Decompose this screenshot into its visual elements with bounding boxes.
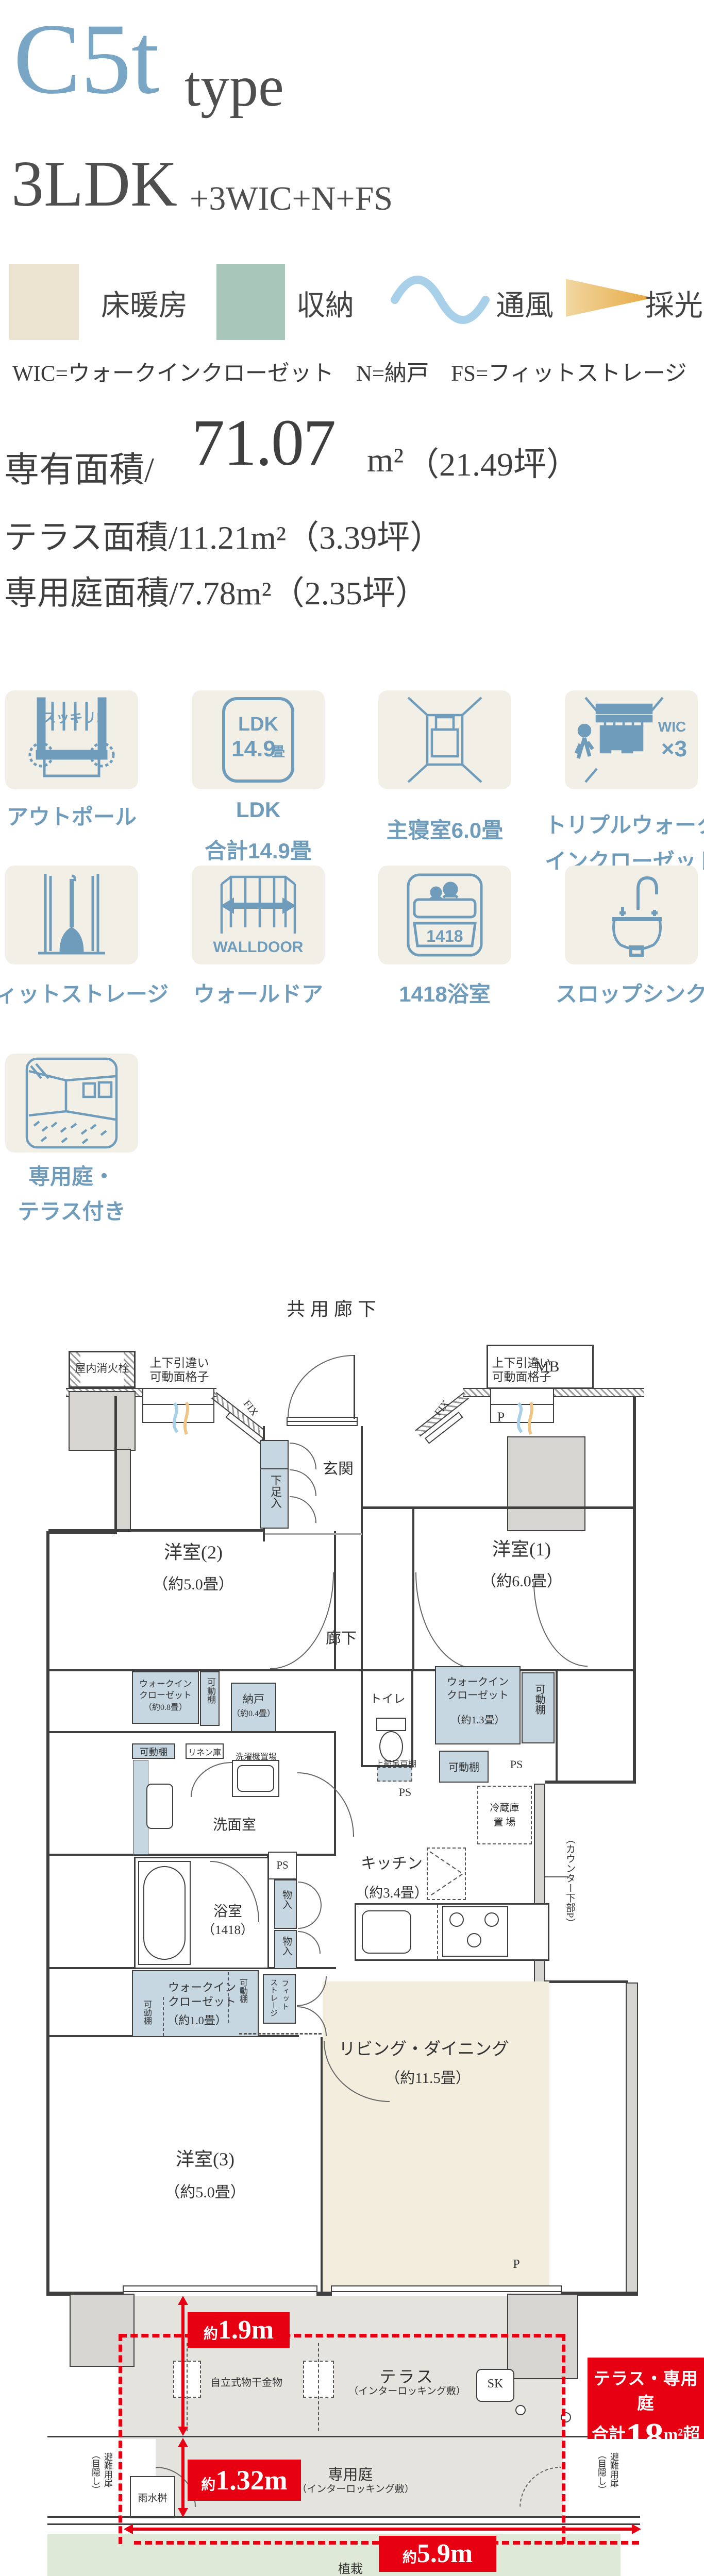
fence-line [47, 2516, 640, 2518]
wic13-l2: クローゼット [447, 1687, 509, 1702]
feature-card-terrace [5, 1054, 138, 1153]
legend-floor-heating-label: 床暖房 [101, 282, 188, 324]
feature-label-walldoor: ウォールドア [193, 977, 323, 1008]
garden-area-line: 専用庭面積/7.78m²（2.35坪） [4, 567, 428, 614]
wic10-shelf-r-label: 可動棚 [236, 1978, 248, 2003]
feature-card-walldoor: WALLDOOR [192, 866, 325, 964]
svg-text:×3: ×3 [661, 736, 687, 761]
legend-storage-swatch [216, 264, 285, 340]
svg-text:1418: 1418 [426, 927, 463, 945]
room3-label: 洋室(3) [176, 2144, 234, 2171]
ps-label-3: PS [276, 1859, 288, 1872]
svg-text:WIC: WIC [658, 719, 686, 735]
counter-divider [437, 1905, 438, 1959]
wic13-l1: ウォークイン [447, 1673, 509, 1688]
door-arc [298, 1931, 321, 1954]
mono2-label: 物入 [279, 1936, 293, 1956]
terrace-garden-badge: テラス・専用庭 合計18m²超 [588, 2358, 704, 2439]
arrowhead [632, 2524, 641, 2534]
linen-label: リネン庫 [188, 1745, 221, 1758]
room2-door-arc [270, 1572, 334, 1669]
wall [48, 1731, 336, 1733]
main-area-label: 専有面積/ [4, 441, 154, 492]
ld-right-wall [626, 1982, 638, 2295]
dim-arrow-width [130, 2528, 635, 2531]
wall [412, 1509, 414, 1671]
floorplan-page: C5t type 3LDK +3WIC+N+FS 床暖房 収納 通風 採光 WI… [0, 0, 704, 2576]
arrowhead [178, 2427, 188, 2436]
washroom-label: 洗面室 [213, 1814, 256, 1834]
p-label-bottom: P [513, 2258, 519, 2272]
terrace-garden-line [47, 2436, 640, 2437]
entrance-door-leaf [354, 1355, 355, 1419]
feature-label-terrace-2: テラス付き [18, 1194, 125, 1226]
terrace-interlock: （インターロッキング敷） [348, 2383, 465, 2397]
pantry-mark [427, 1848, 466, 1900]
door-arc [298, 1905, 322, 1929]
master-bedroom-icon [378, 690, 511, 789]
tub-inner [143, 1866, 186, 1960]
wic13-door-arc [533, 1582, 588, 1667]
legend-floor-heating-swatch [9, 264, 79, 340]
hydrant-label: 屋内消火栓 [75, 1360, 129, 1376]
wic10-shelf-l-label: 可動棚 [140, 2000, 153, 2025]
wall [46, 1531, 49, 2296]
pillar-top-right [507, 1436, 585, 1531]
ld-door-arc [297, 1772, 354, 1837]
shoe-cabinet-divider [261, 1468, 288, 1469]
svg-text:14.9: 14.9 [231, 736, 276, 761]
pillar-top-left [69, 1391, 136, 1451]
door-arc [290, 1469, 316, 1496]
wic10-l2: クローゼット [168, 1993, 236, 2009]
stove-burner [467, 1933, 481, 1947]
feature-label-ldk-2: 合計14.9畳 [205, 834, 312, 865]
outpole-icon: スッキリ! [5, 690, 138, 789]
arrowhead [124, 2524, 133, 2534]
legend-daylight-label: 採光 [645, 282, 703, 324]
stove-burner [484, 1912, 499, 1927]
feature-card-bath1418: 1418 [378, 866, 511, 964]
wall [114, 1396, 117, 1534]
legend-storage-label: 収納 [296, 282, 354, 324]
daylight-triangle-icon [566, 274, 653, 321]
feature-card-bedroom [378, 690, 511, 789]
feature-label-bedroom: 主寝室6.0畳 [387, 813, 503, 844]
stove-burner [449, 1912, 464, 1927]
toilet-label: トイレ [370, 1689, 406, 1706]
layout: 3LDK [11, 145, 177, 223]
shoe-cabinet-label: 下足入 [267, 1475, 283, 1509]
fence-line [47, 2523, 640, 2525]
arrowhead [178, 2438, 188, 2447]
private-garden-terrace-icon [5, 1054, 138, 1153]
sk-label: SK [488, 2377, 504, 2391]
fit-storage-l2: ストレージ [268, 1978, 279, 2017]
svg-text:畳: 畳 [272, 744, 285, 759]
wall [363, 1506, 635, 1509]
lattice-note-right-2: 可動面格子 [492, 1367, 551, 1384]
feature-card-fitstorage [5, 866, 138, 964]
living-label: リビング・ダイニング [339, 2035, 509, 2060]
plan-compass-icon [650, 2574, 700, 2576]
dim-5-9m: 約5.9m [379, 2536, 496, 2572]
slop-sink-icon [565, 866, 698, 964]
door-arc [298, 1882, 322, 1905]
pillar-bottom-left [70, 2294, 135, 2367]
entrance-sill [287, 1417, 358, 1426]
room3-size: （約5.0畳） [164, 2179, 246, 2202]
feature-label-wic-1: トリプルウォーク [545, 808, 704, 839]
rainwater-label: 雨水桝 [138, 2490, 167, 2504]
drain-circle [515, 2405, 526, 2415]
kitchen-sink [362, 1910, 411, 1954]
shelf4-label: 可動棚 [448, 1759, 479, 1774]
pole-line [318, 2343, 319, 2431]
wall [411, 1671, 413, 1767]
feature-card-wic: WIC ×3 [565, 690, 698, 789]
terrace-area-line: テラス面積/11.21m²（3.39坪） [4, 511, 443, 558]
layout-suffix: +3WIC+N+FS [190, 179, 393, 218]
planting-strip [47, 2534, 621, 2576]
wall [545, 1781, 636, 1784]
dim-arrow-garden [181, 2443, 185, 2513]
fridge-l1: 冷蔵庫 [490, 1800, 519, 1814]
unit-type-word: type [185, 58, 284, 115]
wall [545, 1980, 628, 1983]
wic08-l2: クローゼット [139, 1688, 192, 1701]
dim-1-32m: 約1.32m [188, 2460, 301, 2501]
nando-label: 納戸 [243, 1691, 264, 1706]
counter-leader [545, 1876, 568, 1877]
feature-card-slopsink [565, 866, 698, 964]
ps-label-2: PS [399, 1786, 411, 1799]
door-arc [290, 1443, 316, 1469]
pole-line [187, 2343, 188, 2431]
feature-label-fitstorage: フィットストレージ [0, 977, 169, 1008]
ps-label-1: PS [510, 1758, 523, 1771]
wic13-size: （約1.3畳） [451, 1711, 505, 1726]
svg-text:スッキリ!: スッキリ! [43, 710, 101, 725]
legend-note: WIC=ウォークインクローゼット N=納戸 FS=フィットストレージ [12, 355, 687, 387]
ldk-icon: LDK 14.9 畳 [192, 690, 325, 789]
washbasin [146, 1784, 173, 1829]
toilet-tank [376, 1718, 406, 1731]
entrance-door-arc [288, 1355, 354, 1418]
feature-label-outpole: アウトポール [7, 800, 137, 831]
dim-1-9m: 約1.9m [188, 2312, 290, 2348]
feature-label-ldk-1: LDK [236, 798, 280, 822]
mono1-label: 物入 [279, 1890, 293, 1909]
living-size: （約11.5畳） [385, 2066, 471, 2088]
main-area-unit: m² [367, 441, 404, 480]
room2-size: （約5.0畳） [153, 1571, 234, 1594]
wall [633, 1396, 636, 1784]
lattice-note-left-2: 可動面格子 [150, 1367, 209, 1384]
wash-door-arc [191, 1762, 232, 1797]
counter-note: （カウンター下部P） [563, 1834, 577, 1928]
arrowhead [178, 2296, 188, 2305]
main-area-value: 71.07 [192, 405, 335, 481]
washer-inner [237, 1765, 274, 1792]
svg-text:LDK: LDK [238, 714, 279, 735]
boundary-dash-top [120, 2334, 563, 2337]
cupboard-box [377, 1767, 412, 1782]
wall [556, 1671, 558, 1782]
feature-label-terrace-1: 専用庭・ [28, 1159, 115, 1191]
nando-size: （約0.4畳） [232, 1706, 275, 1719]
wic10-size: （約1.0畳） [167, 2011, 227, 2028]
feature-label-bath1418: 1418浴室 [399, 977, 490, 1008]
living-floor-heating-area [323, 1981, 549, 2292]
escape-door-left-1: 避難用扉 [101, 2452, 114, 2487]
boundary-dash-right [562, 2334, 565, 2544]
door-arc [290, 1496, 316, 1523]
room1-door-arc [415, 1572, 477, 1669]
bath-1418-icon: 1418 [378, 866, 511, 964]
legend-ventilation-label: 通風 [496, 282, 554, 324]
shelf2-label: 可動棚 [532, 1684, 547, 1715]
planting-label: 植栽 [338, 2558, 363, 2576]
vent-light-icon-top-left [164, 1399, 197, 1449]
triple-wic-icon: WIC ×3 [565, 690, 698, 789]
wall [48, 1529, 265, 1532]
escape-door-left-2: （目隠し） [89, 2450, 102, 2494]
fit-storage-icon [5, 866, 138, 964]
hall-label: 廊下 [326, 1625, 357, 1648]
feature-card-outpole: スッキリ! [5, 690, 138, 789]
walldoor-icon: WALLDOOR [192, 866, 325, 964]
wind-wave-icon [388, 268, 493, 327]
shelf3-label: 可動棚 [140, 1745, 167, 1758]
boundary-dash-left [119, 2334, 122, 2544]
shelf-label: 可動棚 [204, 1677, 217, 1704]
kitchen-label: キッチン [361, 1851, 423, 1873]
arrowhead [178, 2508, 188, 2517]
feature-card-ldk: LDK 14.9 畳 [192, 690, 325, 789]
feature-label-slopsink: スロップシンク [556, 977, 704, 1008]
wic08-size: （約0.8畳） [144, 1700, 187, 1713]
garden-interlock: （インターロッキング敷） [297, 2481, 414, 2495]
wall [334, 1531, 336, 1671]
dim-arrow-terrace [181, 2301, 185, 2431]
main-area-tsubo: （21.49坪） [406, 438, 579, 485]
fit-storage-l1: フィット [279, 1979, 290, 2010]
kitchen-size: （約3.4畳） [355, 1882, 428, 1902]
unit-name: C5t [13, 1, 159, 117]
p-label-top: P [497, 1410, 505, 1425]
entrance-label: 玄関 [323, 1456, 354, 1479]
bath-size: （1418） [202, 1920, 254, 1938]
wall [361, 1426, 363, 1671]
laundry-pole-label: 自立式物干金物 [210, 2374, 282, 2389]
room2-label: 洋室(2) [164, 1537, 223, 1564]
common-corridor-label: 共用廊下 [287, 1294, 381, 1321]
wall [361, 1671, 363, 1767]
room1-label: 洋室(1) [492, 1534, 551, 1561]
svg-text:WALLDOOR: WALLDOOR [213, 939, 304, 956]
fridge-l2: 置 場 [494, 1815, 516, 1828]
genkan-step [265, 1533, 362, 1535]
